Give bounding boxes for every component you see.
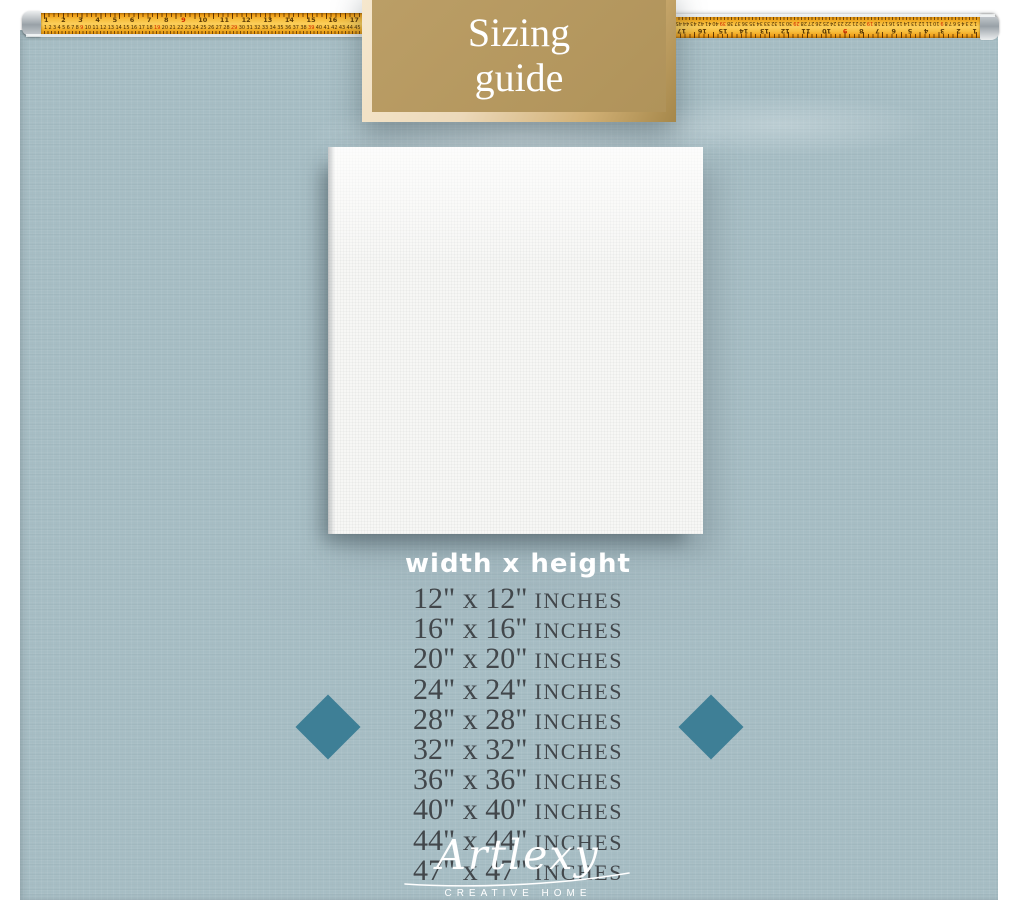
tape-cm-number: 6 xyxy=(953,20,956,25)
tape-inch-number: 2 xyxy=(956,27,961,34)
tape-cm-number: 41 xyxy=(705,20,711,25)
tape-cm-number: 23 xyxy=(837,20,843,25)
tape-cm-number: 25 xyxy=(823,20,829,25)
tape-inch-number: 11 xyxy=(801,27,810,34)
tape-cm-number: 30 xyxy=(786,20,792,25)
tape-cm-number: 21 xyxy=(852,20,858,25)
tape-inch-number: 15 xyxy=(307,17,316,24)
tape-cm-number: 33 xyxy=(764,20,770,25)
size-unit: INCHES xyxy=(535,679,623,704)
tape-inch-number: 9 xyxy=(843,27,848,34)
tape-inch-number: 1 xyxy=(972,27,977,34)
tape-cm-number: 39 xyxy=(720,20,726,25)
tape-cm-number: 5 xyxy=(957,20,960,25)
sizing-guide-infographic: 1234567891011121314151617 12345678910111… xyxy=(0,0,1024,921)
tape-cm-number: 40 xyxy=(712,20,718,25)
tape-cm-tick-marks xyxy=(44,31,361,34)
tape-cm-number: 36 xyxy=(742,20,748,25)
blank-canvas xyxy=(328,147,703,534)
tape-cm-number: 1 xyxy=(974,20,977,25)
tape-inch-number: 1 xyxy=(44,17,49,24)
tape-inch-number: 5 xyxy=(908,27,913,34)
tape-inch-number: 10 xyxy=(198,17,207,24)
tape-inch-number: 5 xyxy=(113,17,118,24)
tape-cm-number: 28 xyxy=(801,20,807,25)
size-unit: INCHES xyxy=(535,648,623,673)
size-dimensions: 28" x 28" xyxy=(413,703,528,736)
tape-inch-number: 9 xyxy=(181,17,186,24)
tape-cm-number: 45 xyxy=(676,20,682,25)
size-unit: INCHES xyxy=(535,709,623,734)
tape-end-cap-icon xyxy=(22,11,41,36)
tape-cm-number: 37 xyxy=(734,20,740,25)
size-unit: INCHES xyxy=(535,739,623,764)
tape-cm-number: 22 xyxy=(845,20,851,25)
tape-cm-number: 11 xyxy=(926,20,932,25)
tape-inch-number: 14 xyxy=(739,27,748,34)
tape-inch-number: 13 xyxy=(263,17,272,24)
measuring-tape-left: 1234567891011121314151617 12345678910111… xyxy=(26,13,363,34)
tape-cm-number: 29 xyxy=(793,20,799,25)
tape-cm-number: 17 xyxy=(882,20,888,25)
tape-inch-number: 3 xyxy=(78,17,83,24)
tape-inch-number: 12 xyxy=(242,17,251,24)
tape-end-cap-icon xyxy=(980,15,999,40)
tape-cm-number: 34 xyxy=(756,20,762,25)
tape-cm-number: 44 xyxy=(683,20,689,25)
canvas-side-edge xyxy=(328,147,335,534)
tape-cm-number: 10 xyxy=(933,20,939,25)
tape-cm-number: 27 xyxy=(808,20,814,25)
tape-cm-number: 31 xyxy=(779,20,785,25)
tape-inch-number: 11 xyxy=(220,17,229,24)
tape-cm-number: 43 xyxy=(690,20,696,25)
tape-cm-number: 2 xyxy=(970,20,973,25)
brand-logo: Artlexy CREATIVE HOME xyxy=(318,834,718,899)
tape-inch-number: 3 xyxy=(940,27,945,34)
tape-cm-number: 15 xyxy=(896,20,902,25)
tape-inch-number: 8 xyxy=(859,27,864,34)
tape-inch-number: 7 xyxy=(147,17,152,24)
tape-cm-number: 7 xyxy=(949,20,952,25)
size-dimensions: 32" x 32" xyxy=(413,733,528,766)
tape-inch-number: 15 xyxy=(719,27,728,34)
tape-inch-number: 17 xyxy=(677,27,686,34)
tape-cm-number: 26 xyxy=(815,20,821,25)
tape-cm-number: 20 xyxy=(859,20,865,25)
tape-cm-number: 4 xyxy=(961,20,964,25)
brand-tagline: CREATIVE HOME xyxy=(318,888,718,899)
size-dimensions: 20" x 20" xyxy=(413,642,528,675)
tape-cm-number: 24 xyxy=(830,20,836,25)
tape-inch-number: 7 xyxy=(875,27,880,34)
tape-cm-number: 32 xyxy=(771,20,777,25)
size-dimensions: 40" x 40" xyxy=(413,793,528,826)
tape-cm-number: 3 xyxy=(965,20,968,25)
tape-cm-number: 8 xyxy=(945,20,948,25)
tape-cm-number: 14 xyxy=(904,20,910,25)
tape-inch-number: 4 xyxy=(924,27,929,34)
tape-inch-number: 4 xyxy=(95,17,100,24)
tape-cm-tick-marks xyxy=(675,17,977,20)
tape-cm-number: 42 xyxy=(698,20,704,25)
tape-inch-number: 12 xyxy=(781,27,790,34)
tape-cm-number: 9 xyxy=(940,20,943,25)
tape-cm-number: 13 xyxy=(911,20,917,25)
tape-inch-number: 6 xyxy=(130,17,135,24)
tape-inch-number: 6 xyxy=(891,27,896,34)
tape-inch-number: 16 xyxy=(328,17,337,24)
tape-inch-numbers: 1234567891011121314151617 xyxy=(44,17,359,24)
size-unit: INCHES xyxy=(535,618,623,643)
sizing-guide-header: Sizing guide xyxy=(362,0,676,122)
size-dimensions: 36" x 36" xyxy=(413,763,528,796)
tape-inch-number: 17 xyxy=(350,17,359,24)
tape-cm-number: 16 xyxy=(889,20,895,25)
tape-inch-number: 16 xyxy=(698,27,707,34)
tape-cm-number: 38 xyxy=(727,20,733,25)
size-unit: INCHES xyxy=(535,769,623,794)
size-dimensions: 24" x 24" xyxy=(413,673,528,706)
size-unit: INCHES xyxy=(535,588,623,613)
tape-cm-number: 18 xyxy=(874,20,880,25)
tape-cm-number: 12 xyxy=(918,20,924,25)
measuring-tape-right: 1234567891011121314151617 12345678910111… xyxy=(673,17,995,38)
tape-inch-number: 8 xyxy=(164,17,169,24)
tape-inch-number: 10 xyxy=(822,27,831,34)
title-line-2: guide xyxy=(372,56,666,101)
size-dimensions: 16" x 16" xyxy=(413,612,528,645)
tape-cm-number: 35 xyxy=(749,20,755,25)
tape-cm-number: 19 xyxy=(867,20,873,25)
title-line-1: Sizing xyxy=(372,11,666,56)
tape-inch-number: 14 xyxy=(285,17,294,24)
sizing-guide-title: Sizing guide xyxy=(372,0,666,112)
tape-inch-number: 2 xyxy=(61,17,66,24)
size-dimensions: 12" x 12" xyxy=(413,582,528,615)
width-height-label: width x height xyxy=(318,549,718,579)
brand-name: Artlexy xyxy=(318,834,718,877)
tape-inch-number: 13 xyxy=(760,27,769,34)
tape-cm-numbers: 1234567891011121314151617181920212223242… xyxy=(675,20,977,25)
size-unit: INCHES xyxy=(535,799,623,824)
tape-inch-numbers: 1234567891011121314151617 xyxy=(677,27,977,34)
